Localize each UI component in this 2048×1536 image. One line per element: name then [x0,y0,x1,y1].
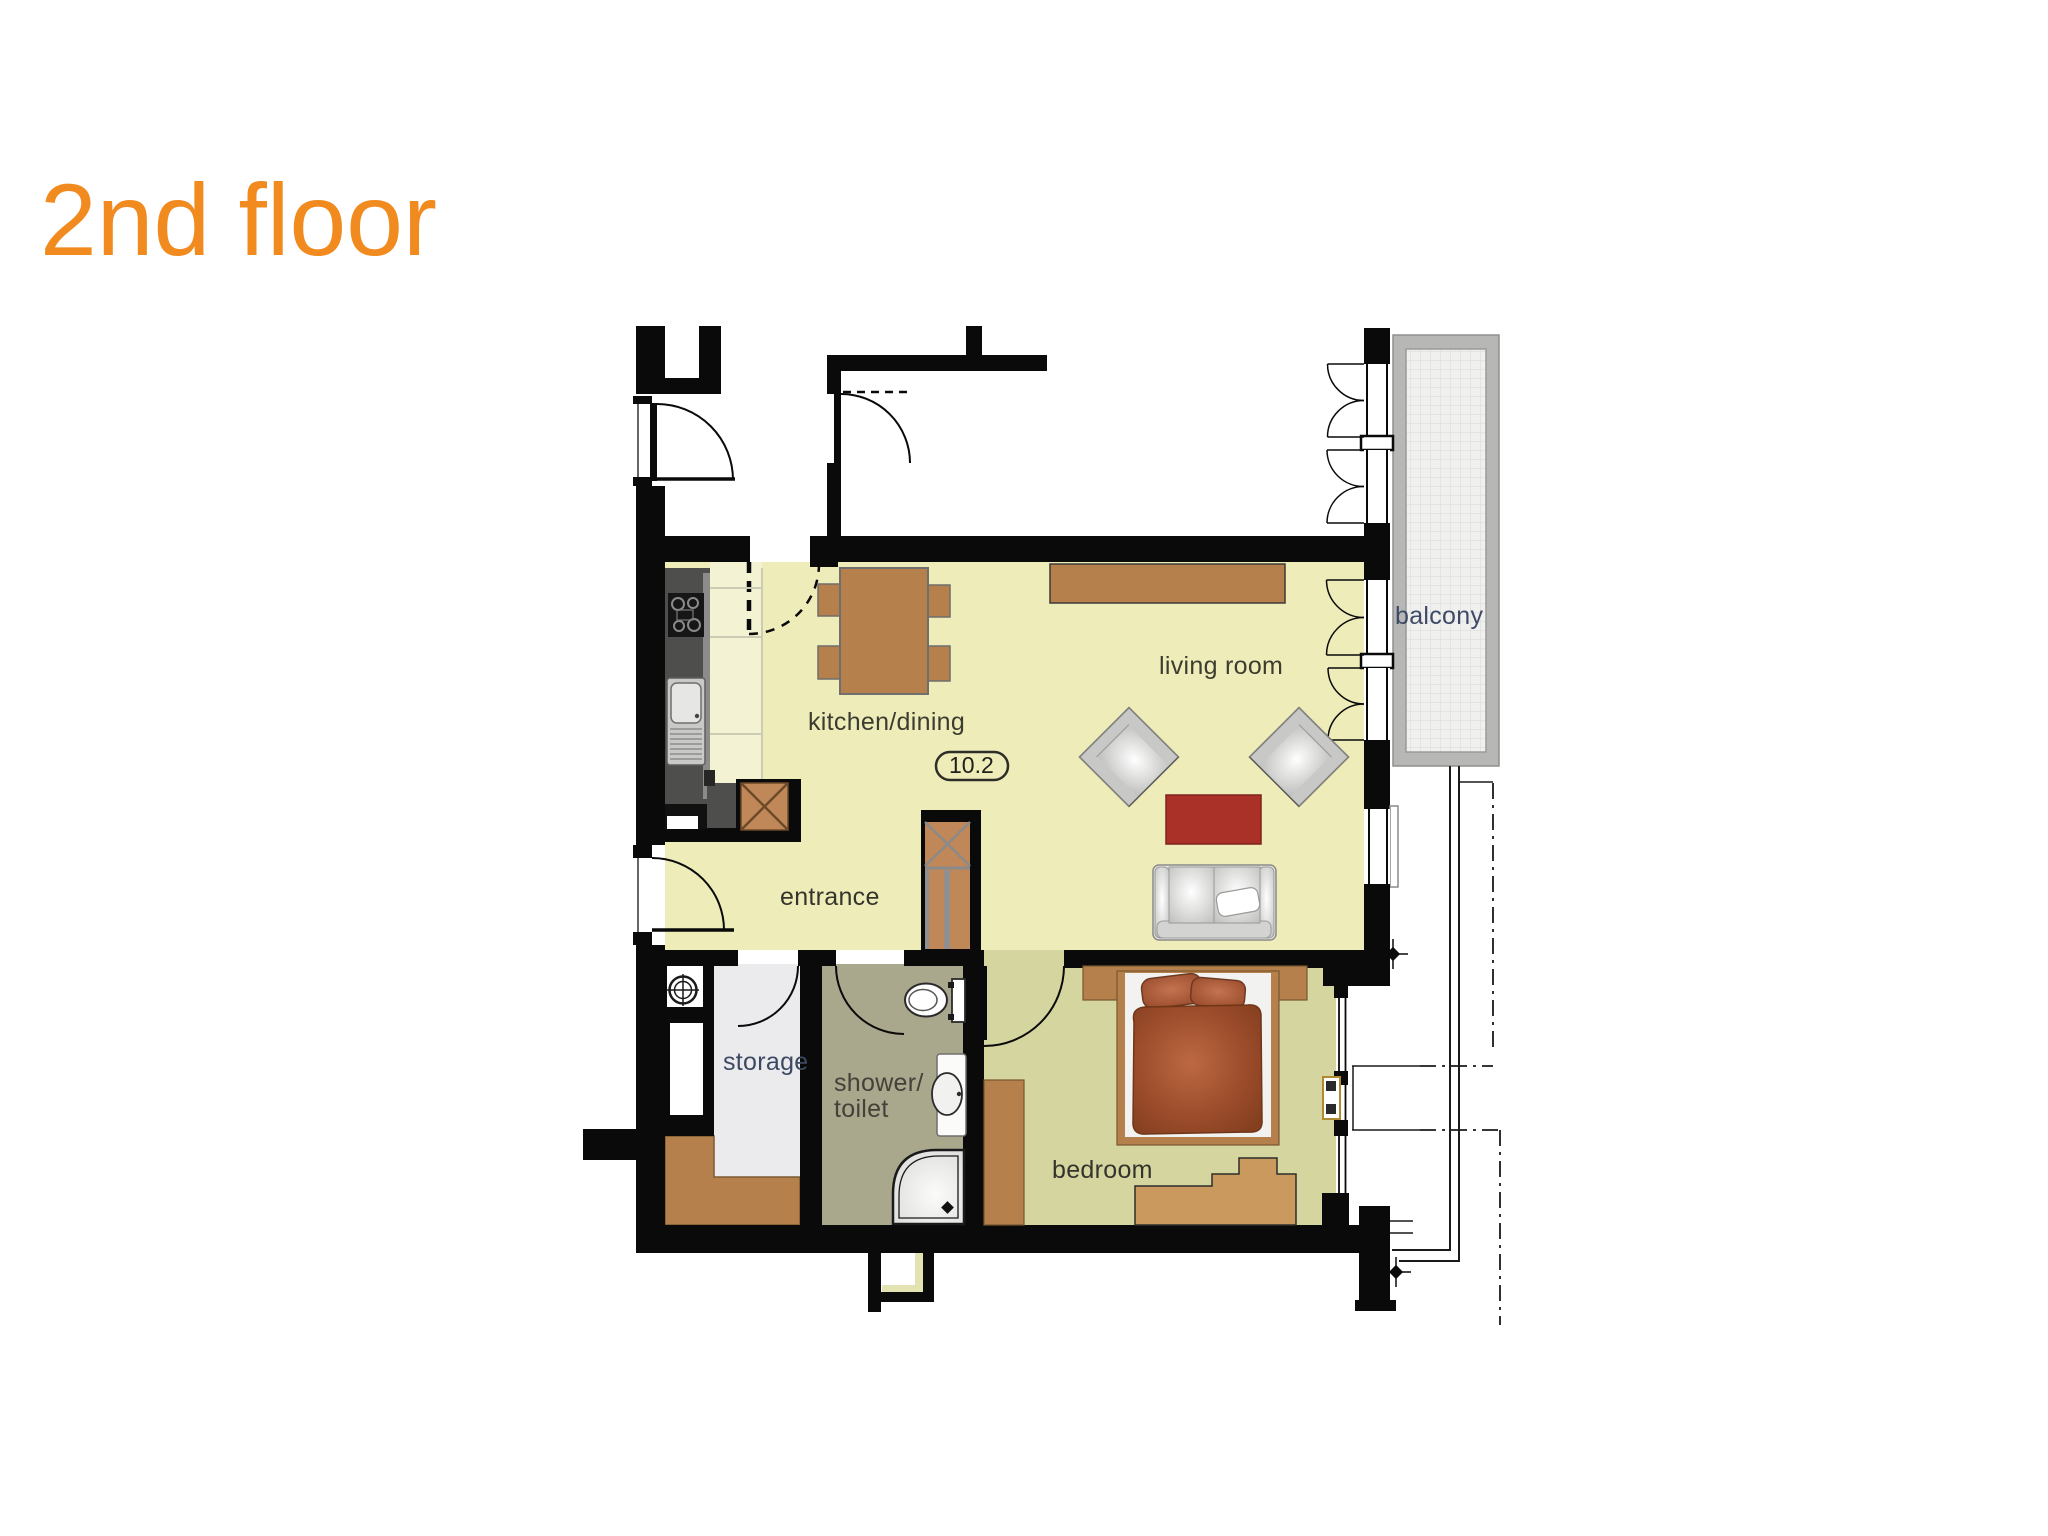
svg-text:shower/: shower/ [834,1069,924,1097]
svg-text:toilet: toilet [834,1095,889,1123]
svg-text:living room: living room [1159,652,1283,680]
svg-text:kitchen/dining: kitchen/dining [808,708,965,736]
svg-text:2nd floor: 2nd floor [40,163,437,277]
svg-text:storage: storage [723,1048,809,1076]
svg-text:bedroom: bedroom [1052,1156,1153,1184]
svg-text:balcony: balcony [1395,602,1483,630]
svg-text:entrance: entrance [780,883,880,911]
svg-text:10.2: 10.2 [949,752,994,778]
